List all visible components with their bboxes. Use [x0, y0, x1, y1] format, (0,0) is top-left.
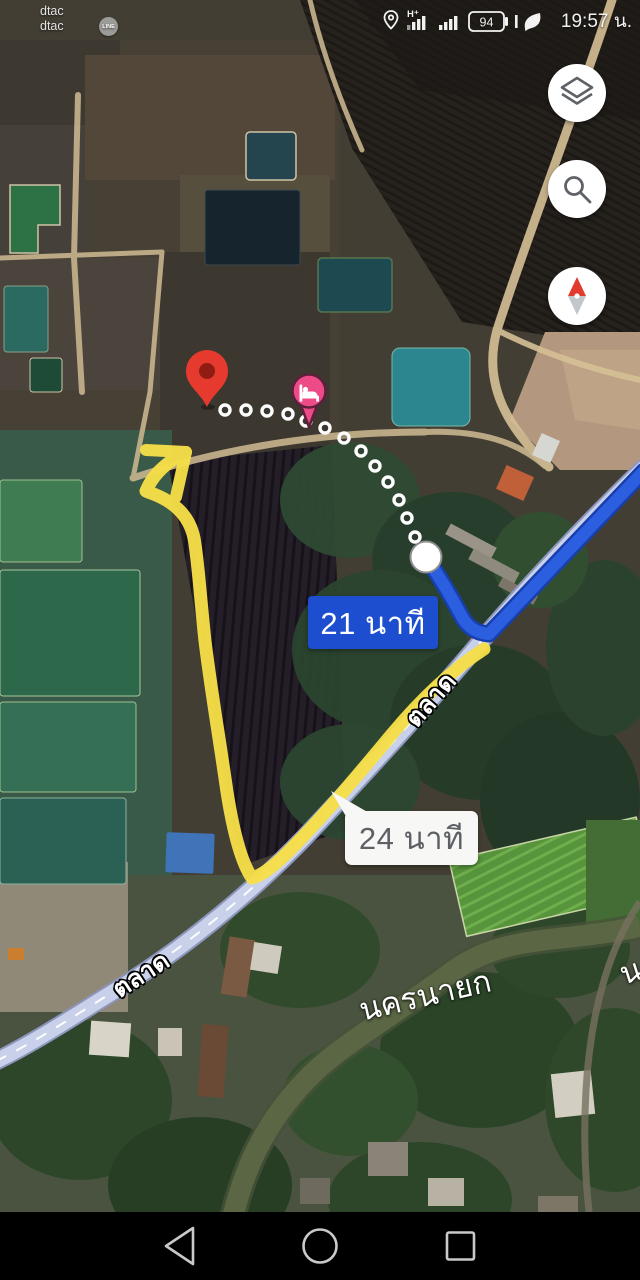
- status-icons: H⁺ 94: [383, 6, 632, 36]
- signal-icon: [439, 16, 457, 30]
- carrier-sim1: dtac: [40, 4, 64, 19]
- layers-button[interactable]: [548, 64, 606, 122]
- back-button[interactable]: [166, 1228, 193, 1264]
- compass-icon: [556, 275, 598, 317]
- android-nav-bar: [0, 1212, 640, 1280]
- alternative-route-duration-bubble[interactable]: 24 นาที: [345, 811, 478, 865]
- battery-icon: 94: [469, 12, 508, 31]
- carrier-labels: dtac dtac: [40, 4, 64, 34]
- line-badge-text: LINE: [102, 24, 115, 30]
- recents-button[interactable]: [447, 1233, 474, 1260]
- line-app-icon: LINE: [99, 17, 118, 36]
- power-saving-leaf-icon: [523, 13, 542, 31]
- svg-text:H⁺: H⁺: [407, 9, 419, 20]
- home-button[interactable]: [304, 1230, 337, 1263]
- status-divider: [515, 15, 518, 28]
- clock-text: 19:57 น.: [561, 6, 632, 36]
- search-icon: [556, 168, 598, 210]
- status-bar: dtac dtac LINE H⁺: [0, 0, 640, 42]
- phone-screen: 21 นาที 24 นาที ตลาด ตลาด นครนายก น dtac…: [0, 0, 640, 1280]
- primary-route-duration-badge[interactable]: 21 นาที: [308, 596, 438, 649]
- location-icon: [384, 11, 397, 29]
- route-start-circle[interactable]: [411, 542, 442, 573]
- status-icon-strip: H⁺ 94: [383, 6, 555, 36]
- layers-icon: [556, 72, 598, 114]
- search-button[interactable]: [548, 160, 606, 218]
- compass-button[interactable]: [548, 267, 606, 325]
- carrier-sim2: dtac: [40, 19, 64, 34]
- battery-percent-text: 94: [479, 16, 493, 30]
- signal-h-plus-icon: H⁺: [407, 9, 425, 30]
